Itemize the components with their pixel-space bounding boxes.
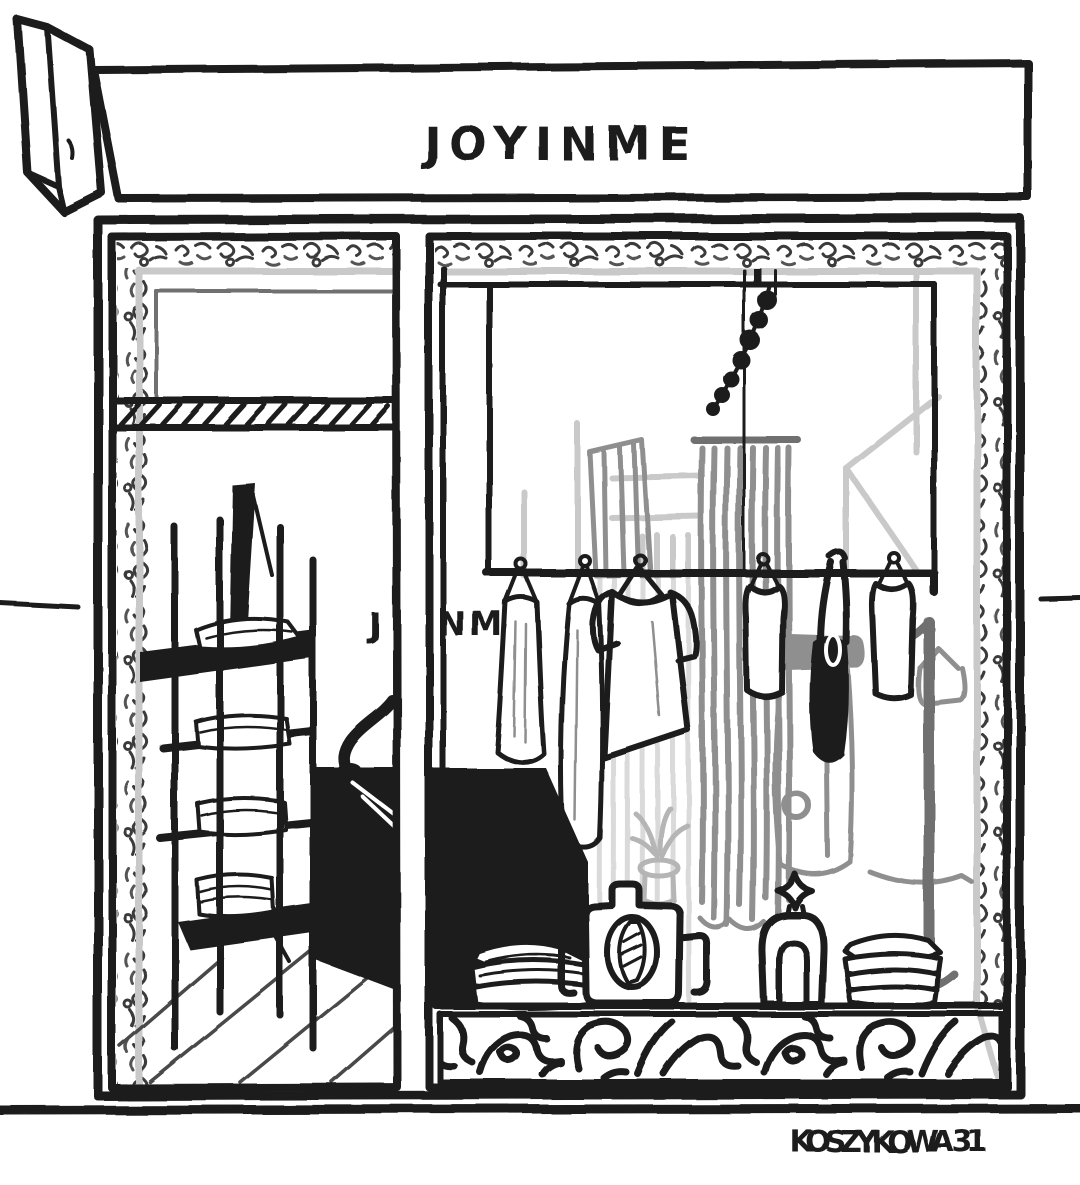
decorative-band-top-left [117,240,394,268]
baseline [0,1108,1080,1110]
towel-stack-left [472,943,590,1008]
floor-pattern-band [440,1014,1002,1082]
interior-sign-left-text: J [367,606,382,646]
towel-stack-right [844,935,940,1007]
store-name-text: JOYINME [421,117,696,171]
storefront-illustration: JOYINME [0,0,1080,1185]
decorative-band-side-right [978,268,1004,1010]
interior-counter-left [311,767,396,990]
ground-line-right [1041,598,1080,599]
address-text: KOSZYKOWA 31 [790,1125,990,1160]
decorative-band-top-right [434,240,1004,268]
